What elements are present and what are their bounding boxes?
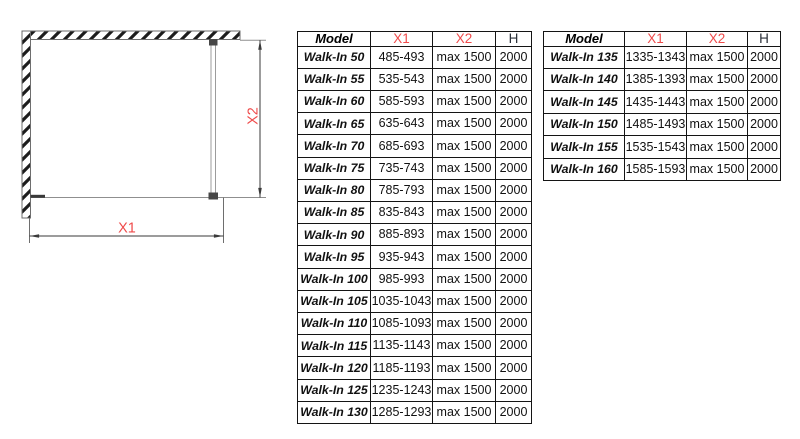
value-cell: 2000 — [496, 224, 532, 246]
value-cell: 835-843 — [371, 201, 433, 223]
value-cell: max 1500 — [433, 312, 496, 334]
value-cell: max 1500 — [433, 379, 496, 401]
value-cell: 2000 — [496, 246, 532, 268]
table-row: Walk-In 1451435-1443max 15002000 — [544, 91, 781, 113]
value-cell: 2000 — [496, 379, 532, 401]
table-row: Walk-In 1201185-1193max 15002000 — [298, 357, 532, 379]
value-cell: max 1500 — [433, 157, 496, 179]
side-wall — [22, 31, 31, 218]
model-cell: Walk-In 145 — [544, 91, 625, 113]
value-cell: 1185-1193 — [371, 357, 433, 379]
table-row: Walk-In 75735-743max 15002000 — [298, 157, 532, 179]
column-header-x2: X2 — [433, 32, 496, 47]
size-table-walkin-50-130: ModelX1X2HWalk-In 50485-493max 15002000W… — [297, 31, 532, 424]
table-row: Walk-In 1301285-1293max 15002000 — [298, 401, 532, 423]
value-cell: 935-943 — [371, 246, 433, 268]
table-row: Walk-In 50485-493max 15002000 — [298, 46, 532, 68]
table-row: Walk-In 100985-993max 15002000 — [298, 268, 532, 290]
column-header-h: H — [748, 32, 781, 47]
model-cell: Walk-In 70 — [298, 135, 371, 157]
header-row: ModelX1X2H — [544, 32, 781, 47]
installation-diagram: X2 X1 — [0, 0, 290, 250]
value-cell: 985-993 — [371, 268, 433, 290]
header-row: ModelX1X2H — [298, 32, 532, 47]
model-cell: Walk-In 105 — [298, 290, 371, 312]
value-cell: 2000 — [748, 46, 781, 68]
value-cell: 2000 — [496, 335, 532, 357]
value-cell: max 1500 — [433, 224, 496, 246]
value-cell: max 1500 — [433, 113, 496, 135]
table-row: Walk-In 85835-843max 15002000 — [298, 201, 532, 223]
value-cell: 1335-1343 — [625, 46, 687, 68]
value-cell: 2000 — [496, 179, 532, 201]
model-cell: Walk-In 65 — [298, 113, 371, 135]
value-cell: 2000 — [496, 357, 532, 379]
x1-arrow-left — [30, 234, 40, 238]
value-cell: 2000 — [496, 401, 532, 423]
value-cell: 2000 — [748, 136, 781, 158]
column-header-model: Model — [544, 32, 625, 47]
value-cell: 1385-1393 — [625, 68, 687, 90]
x1-arrow-right — [214, 234, 224, 238]
value-cell: 735-743 — [371, 157, 433, 179]
x2-dimension-label: X2 — [246, 107, 262, 125]
model-cell: Walk-In 155 — [544, 136, 625, 158]
table-row: Walk-In 95935-943max 15002000 — [298, 246, 532, 268]
top-wall — [22, 31, 240, 40]
value-cell: 485-493 — [371, 46, 433, 68]
model-cell: Walk-In 150 — [544, 113, 625, 135]
value-cell: 2000 — [748, 113, 781, 135]
value-cell: 1585-1593 — [625, 158, 687, 180]
value-cell: 585-593 — [371, 90, 433, 112]
model-cell: Walk-In 85 — [298, 201, 371, 223]
model-cell: Walk-In 60 — [298, 90, 371, 112]
value-cell: 2000 — [496, 201, 532, 223]
table-row: Walk-In 65635-643max 15002000 — [298, 113, 532, 135]
value-cell: 1035-1043 — [371, 290, 433, 312]
bottom-bracket — [209, 193, 219, 200]
column-header-h: H — [496, 32, 532, 47]
value-cell: 2000 — [496, 90, 532, 112]
model-cell: Walk-In 50 — [298, 46, 371, 68]
value-cell: max 1500 — [433, 179, 496, 201]
value-cell: 1135-1143 — [371, 335, 433, 357]
model-cell: Walk-In 115 — [298, 335, 371, 357]
value-cell: max 1500 — [433, 357, 496, 379]
value-cell: 785-793 — [371, 179, 433, 201]
value-cell: max 1500 — [433, 90, 496, 112]
value-cell: max 1500 — [687, 113, 748, 135]
table-row: Walk-In 1351335-1343max 15002000 — [544, 46, 781, 68]
model-cell: Walk-In 110 — [298, 312, 371, 334]
x2-arrow-up — [258, 40, 262, 50]
size-table-walkin-135-160: ModelX1X2HWalk-In 1351335-1343max 150020… — [543, 31, 781, 181]
value-cell: 2000 — [496, 113, 532, 135]
value-cell: max 1500 — [433, 401, 496, 423]
value-cell: max 1500 — [433, 46, 496, 68]
value-cell: 2000 — [748, 91, 781, 113]
value-cell: 2000 — [748, 158, 781, 180]
value-cell: 1085-1093 — [371, 312, 433, 334]
x2-arrow-down — [258, 188, 262, 198]
model-cell: Walk-In 100 — [298, 268, 371, 290]
value-cell: max 1500 — [687, 158, 748, 180]
table-row: Walk-In 1501485-1493max 15002000 — [544, 113, 781, 135]
value-cell: 635-643 — [371, 113, 433, 135]
table-row: Walk-In 1401385-1393max 15002000 — [544, 68, 781, 90]
value-cell: 2000 — [496, 46, 532, 68]
table-row: Walk-In 1101085-1093max 15002000 — [298, 312, 532, 334]
column-header-x1: X1 — [625, 32, 687, 47]
value-cell: 1285-1293 — [371, 401, 433, 423]
column-header-x1: X1 — [371, 32, 433, 47]
value-cell: max 1500 — [687, 91, 748, 113]
top-bracket — [209, 39, 218, 46]
glass-panel — [211, 40, 216, 197]
model-cell: Walk-In 95 — [298, 246, 371, 268]
model-cell: Walk-In 160 — [544, 158, 625, 180]
value-cell: 1535-1543 — [625, 136, 687, 158]
value-cell: 2000 — [496, 312, 532, 334]
model-cell: Walk-In 135 — [544, 46, 625, 68]
model-cell: Walk-In 140 — [544, 68, 625, 90]
value-cell: max 1500 — [433, 335, 496, 357]
table-row: Walk-In 90885-893max 15002000 — [298, 224, 532, 246]
model-cell: Walk-In 90 — [298, 224, 371, 246]
table-row: Walk-In 1251235-1243max 15002000 — [298, 379, 532, 401]
model-cell: Walk-In 80 — [298, 179, 371, 201]
value-cell: max 1500 — [687, 136, 748, 158]
value-cell: 2000 — [496, 157, 532, 179]
table-row: Walk-In 80785-793max 15002000 — [298, 179, 532, 201]
value-cell: 1435-1443 — [625, 91, 687, 113]
model-cell: Walk-In 130 — [298, 401, 371, 423]
x1-dimension-label: X1 — [118, 221, 136, 237]
value-cell: max 1500 — [433, 201, 496, 223]
walkin-spec-sheet: X2 X1 ModelX1X2HWalk-In 50485-493max 150… — [0, 0, 800, 439]
value-cell: 2000 — [496, 68, 532, 90]
value-cell: 1235-1243 — [371, 379, 433, 401]
table-row: Walk-In 1551535-1543max 15002000 — [544, 136, 781, 158]
value-cell: max 1500 — [433, 68, 496, 90]
value-cell: 1485-1493 — [625, 113, 687, 135]
table-row: Walk-In 55535-543max 15002000 — [298, 68, 532, 90]
value-cell: 685-693 — [371, 135, 433, 157]
value-cell: max 1500 — [433, 246, 496, 268]
value-cell: 885-893 — [371, 224, 433, 246]
table-row: Walk-In 60585-593max 15002000 — [298, 90, 532, 112]
table-row: Walk-In 70685-693max 15002000 — [298, 135, 532, 157]
value-cell: max 1500 — [687, 68, 748, 90]
value-cell: max 1500 — [687, 46, 748, 68]
column-header-x2: X2 — [687, 32, 748, 47]
value-cell: 2000 — [748, 68, 781, 90]
model-cell: Walk-In 125 — [298, 379, 371, 401]
model-cell: Walk-In 75 — [298, 157, 371, 179]
value-cell: 2000 — [496, 135, 532, 157]
value-cell: max 1500 — [433, 135, 496, 157]
model-cell: Walk-In 55 — [298, 68, 371, 90]
column-header-model: Model — [298, 32, 371, 47]
value-cell: 2000 — [496, 290, 532, 312]
model-cell: Walk-In 120 — [298, 357, 371, 379]
table-row: Walk-In 1601585-1593max 15002000 — [544, 158, 781, 180]
value-cell: 2000 — [496, 268, 532, 290]
value-cell: max 1500 — [433, 290, 496, 312]
table-row: Walk-In 1151135-1143max 15002000 — [298, 335, 532, 357]
value-cell: 535-543 — [371, 68, 433, 90]
table-row: Walk-In 1051035-1043max 15002000 — [298, 290, 532, 312]
value-cell: max 1500 — [433, 268, 496, 290]
